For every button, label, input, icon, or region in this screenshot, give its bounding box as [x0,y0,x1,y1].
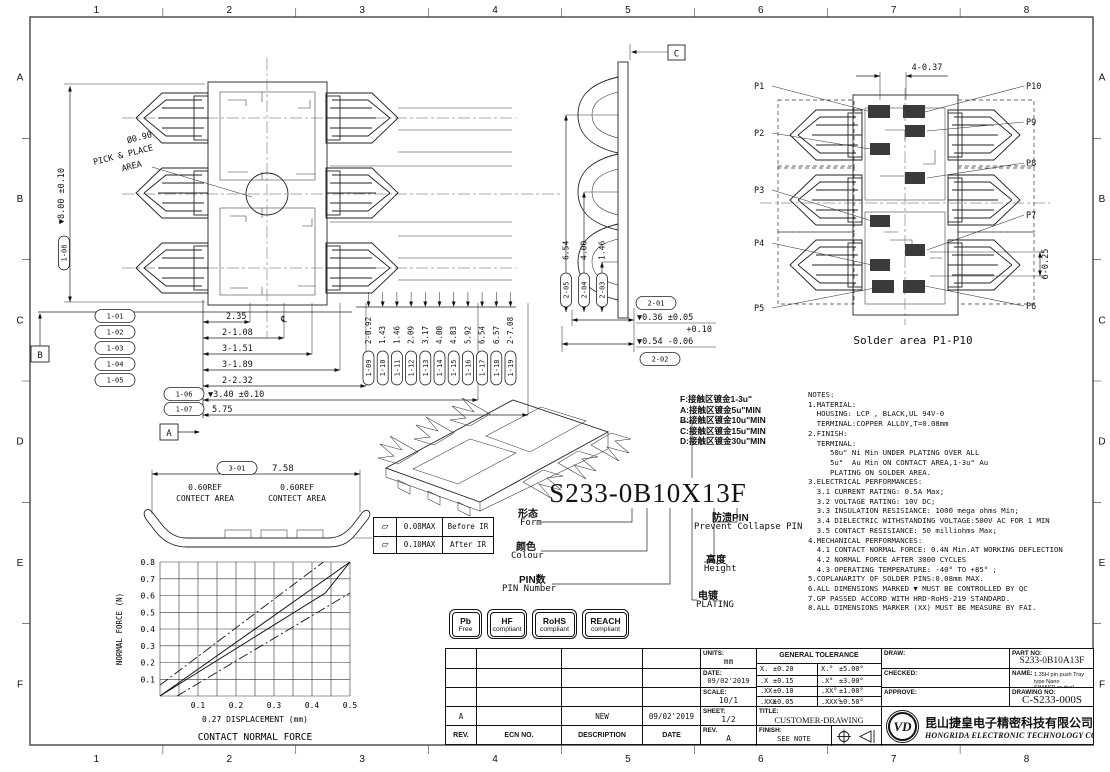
badge-reach-top: REACH [590,616,620,626]
contact-area-right-line1: 0.60REF [280,483,314,492]
dim-line [772,86,868,111]
callout-label: 1-06 [176,391,193,399]
tolerance-value: ±1.00° [839,687,881,695]
datum-a-label: A [166,429,172,439]
projection-cone-icon [860,730,874,743]
tolerance-value: ±5.00° [839,665,881,673]
chart-y-tick: 0.5 [141,608,156,617]
chart-y-tick: 0.1 [141,675,156,684]
dim-arrow [562,342,568,346]
dim-text: 2-0.92 [364,317,373,344]
callout-label: 2-02 [652,356,669,364]
dim-line [925,286,1024,306]
dim-arrow [203,384,209,388]
part-number-text: S233-0B10X13F [549,478,747,508]
logo-text: VD [893,719,911,735]
dim-arrow [572,318,578,322]
pin-label: P8 [1026,159,1036,169]
chart-y-tick: 0.4 [141,625,156,634]
date-value: 09/02'2019 [701,677,756,685]
dim-text: 5.75 [212,405,232,415]
badge-reach: REACHcompliant [582,609,629,639]
checked-cell: CHECKED: [881,668,1009,687]
zone-col-label: 6 [758,754,764,765]
chart-x-tick: 0.2 [229,701,244,710]
profile-dim-value: 7.58 [272,464,294,474]
revision-cell [476,706,561,725]
dim-text: 2-1.08 [222,328,253,338]
form-label-en: Form [520,518,542,528]
dim-arrow [203,320,209,324]
callout-label: 1-04 [107,361,124,369]
collapse-label-en: Prevent Collapse PIN [694,522,802,532]
chart-title: CONTACT NORMAL FORCE [198,732,313,743]
dim-text: 3.17 [421,326,430,344]
revision-cell [446,649,476,668]
sheet-value: 1/2 [701,715,756,724]
chart-xlabel: 0.27 DISPLACEMENT (mm) [202,715,308,724]
rev-label: REV. [703,727,717,734]
pin-label-en: PIN Number [502,584,556,594]
callout-label: 2-04 [581,282,589,299]
dim-arrow [38,313,42,319]
dim-arrow [203,413,209,417]
company-name-en: HONGRIDA ELECTRONIC TECHNOLOGY CO,LTD. [925,731,1094,740]
dim-text: 2-7.08 [506,316,515,344]
badge-hf: HFcompliant [487,609,527,639]
dim-text: 6.54 [562,241,571,260]
dim-arrow [381,302,385,308]
dim-arrow [423,302,427,308]
title-label: TITLE: [759,708,779,715]
dim-arrow [203,368,209,372]
dim-arrow [367,302,371,308]
dim-text: 1.46 [392,325,401,344]
pick-place-note: Ø0.90 PICK & PLACE AREA [89,129,160,180]
zone-row-label: F [17,679,23,690]
title-block: UNITS: mm DATE: 09/02'2019 SCALE: 10/1 S… [700,648,1094,745]
tolerance-value: .X° [817,676,839,686]
plating-options: F:接触区镀金1-3u" A:接触区镀金5u"MIN B:接触区镀金10u"MI… [680,394,766,447]
dim-line [927,122,1024,131]
callout-label: 1-13 [422,360,430,377]
height-label-en: Height [704,564,737,574]
zone-col-label: 7 [891,754,897,765]
pin-label: P1 [754,82,764,92]
dim-line [772,243,872,265]
chart-y-tick: 0.8 [141,558,156,567]
tolerance-grid: X.±0.20X.°±5.00°.X±0.15.X°±3.00°.XX±0.10… [756,663,881,706]
pin-label: P2 [754,129,764,139]
zone-col-label: 8 [1024,754,1030,765]
datum-b-label: B [37,351,42,361]
badge-hf-bottom: compliant [492,626,521,633]
badge-reach-bottom: compliant [591,626,620,633]
plating-label-en: PLATING [696,600,734,610]
tolerance-title: GENERAL TOLERANCE [756,649,881,663]
zone-col-label: 8 [1024,5,1030,16]
projection-symbols-cell [831,725,881,746]
zone-row-label: E [17,558,24,569]
solder-right-dim: 6-0.25 [1041,249,1051,280]
dim-text: 6.54 [478,325,487,344]
zone-row-label: C [1098,315,1105,326]
dim-text: ▼3.40 ±0.10 [208,390,264,400]
callout-label: 1-15 [450,360,458,377]
projection-symbols [833,727,881,746]
notes-block: NOTES: 1.MATERIAL: HOUSING: LCP , BLACK,… [808,390,1093,613]
chart-y-tick: 0.3 [141,642,156,651]
pin-label: P5 [754,304,764,314]
drawing-no-label: DRAWING NO: [1012,689,1056,696]
dim-arrow [466,302,470,308]
dim-arrow [361,384,367,388]
revision-header: ECN NO. [476,725,561,744]
drawing-sheet: B A C ℄ ▼8.00 ±0.10 Ø0.90 PICK & PLACE A… [0,0,1110,772]
dim-text: +0.10 [686,325,712,335]
dim-text: 4.00 [435,325,444,344]
revision-cell [446,668,476,687]
callout-label: 2-03 [599,282,607,299]
chart-y-tick: 0.2 [141,659,156,668]
zone-row-label: C [16,315,23,326]
flatness-label: Before IR [442,518,493,536]
zone-col-label: 3 [359,5,365,16]
revision-header: REV. [446,725,476,744]
callout-label: 1-19 [507,360,515,377]
badge-rohs: RoHScompliant [532,609,577,639]
dim-arrow [395,302,399,308]
callout-label: 1-17 [479,360,487,377]
dim-arrow [600,262,604,268]
solder-caption: Solder area P1-P10 [853,334,972,347]
pin-label: P9 [1026,118,1036,128]
chart-y-tick: 0.6 [141,592,156,601]
revision-table: ANEW09/02'2019REV.ECN NO.DESCRIPTIONDATE [445,648,701,745]
tolerance-value: X. [757,665,773,673]
badge-rohs-top: RoHS [543,616,566,626]
badge-hf-top: HF [501,616,512,626]
dim-text: 2-2.32 [222,376,253,386]
dim-arrow [473,398,479,402]
tolerance-value: ±3.00° [839,677,881,685]
dim-text: 1.43 [378,326,387,344]
revision-cell [476,668,561,687]
badge-rohs-bottom: compliant [540,626,569,633]
flatness-value: 0.08MAX [396,518,442,536]
tolerance-row: X.±0.20X.°±5.00° [757,664,881,675]
flatness-table: ▱0.08MAXBefore IR▱0.10MAXAfter IR [373,517,494,554]
dim-arrow [564,115,568,121]
badge-pb-free: PbFree [449,609,482,639]
dim-text: 3-1.89 [222,360,253,370]
tolerance-value: ±0.50° [839,698,881,706]
tolerance-value: .XX° [817,687,839,697]
dim-text: 5.92 [463,326,472,344]
revision-cell [446,687,476,706]
dim-line [925,86,1024,112]
revision-cell: 09/02'2019 [642,706,700,725]
dim-arrow [355,472,361,476]
scale-label: SCALE: [703,689,726,696]
flatness-value: 0.10MAX [396,536,442,554]
revision-cell [642,687,700,706]
centerline-symbol: ℄ [280,315,287,325]
dim-arrow [438,302,442,308]
contact-area-left-line1: 0.60REF [188,483,222,492]
sheet-cell: SHEET: 1/2 [701,706,756,725]
revision-cell [642,668,700,687]
dim-arrow [203,336,209,340]
solder-view-linework [760,72,1050,325]
finish-label: FINISH: [759,727,782,734]
company-logo: VD [888,712,917,741]
dim-arrow [152,472,158,476]
rev-value: A [701,734,756,743]
revision-cell [476,687,561,706]
dim-arrow [906,74,912,78]
dim-line [772,190,872,221]
part-no-cell: PART NO: S233-0B10A13F [1009,649,1094,668]
chart-x-tick: 0.3 [267,701,282,710]
units-cell: UNITS: mm [701,649,756,668]
drawing-no-cell: DRAWING NO: C-S233-000S [1009,687,1094,706]
tolerance-row: .XX±0.10.XX°±1.00° [757,686,881,697]
flatness-label: After IR [442,536,493,554]
checked-label: CHECKED: [884,670,917,677]
callout-label: 1-18 [493,360,501,377]
sheet-label: SHEET: [703,708,725,715]
solder-top-dim: 4-0.37 [912,63,943,73]
dim-text: ▼0.54 -0.06 [637,337,693,347]
height-dim-text: ▼8.00 ±0.10 [57,168,67,224]
contact-area-left-line2: CONTECT AREA [176,494,234,503]
dim-arrow [629,342,635,346]
chart-y-tick: 0.7 [141,575,156,584]
dim-arrow [582,192,586,198]
pin-label: P3 [754,186,764,196]
zone-col-label: 5 [625,5,631,16]
revision-cell [561,649,642,668]
zone-row-label: F [1099,679,1105,690]
dim-arrow [875,74,881,78]
callout-label: 1-07 [176,406,193,414]
pin-label: P6 [1026,302,1036,312]
callout-label: 1-01 [107,313,124,321]
revision-header: DATE [642,725,700,744]
target-symbol-icon [837,730,851,744]
badge-pb-bottom: Free [459,626,473,633]
tolerance-value: .XXX [757,698,773,706]
company-cell: VD 昆山捷皇电子精密科技有限公司 HONGRIDA ELECTRONIC TE… [881,706,1094,746]
flatness-symbol: ▱ [374,536,396,554]
dim-arrow [68,297,72,303]
zone-row-label: D [16,437,23,448]
date-cell: DATE: 09/02'2019 [701,668,756,687]
callout-label: 1-11 [393,360,401,377]
dim-arrow [68,86,72,92]
tolerance-row: .XXX±0.05.XXX°±0.50° [757,696,881,706]
zone-col-label: 4 [492,754,498,765]
rev-cell: REV. A [701,725,756,746]
zone-row-label: A [1099,73,1106,84]
pin-label: P4 [754,239,764,249]
dim-arrow [509,302,513,308]
dim-text: 1.46 [598,241,607,260]
dim-arrow [307,352,313,356]
dim-arrow [629,318,635,322]
revision-cell [476,649,561,668]
title-cell: TITLE: CUSTOMER-DRAWING [756,706,881,725]
zone-col-label: 4 [492,5,498,16]
company-name-cn: 昆山捷皇电子精密科技有限公司 [925,714,1094,731]
pin-label: P10 [1026,82,1041,92]
name-cell: NAME: 1.35H pin push Tray type Nano SIM&… [1009,668,1094,687]
chart-x-tick: 0.4 [305,701,320,710]
dim-arrow [203,352,209,356]
callout-label: 1-03 [107,345,124,353]
callout-label: 1-09 [365,360,373,377]
zone-row-label: D [1098,437,1105,448]
callout-label: 1-12 [408,360,416,377]
zone-col-label: 6 [758,5,764,16]
dim-arrow [494,302,498,308]
scale-value: 10/1 [701,696,756,705]
revision-cell: NEW [561,706,642,725]
zone-col-label: 1 [94,5,100,16]
callout-label: 3-01 [229,465,246,473]
name-label: NAME: [1012,670,1033,677]
tolerance-value: ±0.20 [773,665,817,673]
dim-text: 3-1.51 [222,344,253,354]
dim-text: 4.83 [449,326,458,344]
dim-arrow [523,413,529,417]
callout-label: 1-14 [436,360,444,377]
contact-area-right-line2: CONTECT AREA [268,494,326,503]
tolerance-value: ±0.15 [773,677,817,685]
pin-label: P7 [1026,211,1036,221]
tolerance-row: .X±0.15.X°±3.00° [757,675,881,686]
tolerance-value: X.° [817,664,839,675]
chart-x-tick: 0.5 [343,701,358,710]
flatness-symbol: ▱ [374,518,396,536]
badge-pb-top: Pb [460,616,471,626]
zone-row-label: B [17,194,24,205]
date-label: DATE: [703,670,722,677]
finish-value: SEE NOTE [757,735,831,743]
draw-label: DRAW: [884,650,905,657]
datum-c-label: C [674,50,679,60]
dim-line [927,215,1024,250]
callout-label: 1-10 [379,360,387,377]
zone-col-label: 7 [891,5,897,16]
colour-label-en: Colour [511,551,544,561]
revision-cell [561,668,642,687]
dim-text: 6.57 [492,326,501,344]
contact-force-chart: 0.10.20.30.40.50.10.20.30.40.50.60.70.8 … [82,552,374,764]
solder-pads [868,105,925,293]
dim-text: ▼0.36 ±0.05 [637,313,693,323]
tolerance-value: ±0.05 [773,698,817,706]
title-value: CUSTOMER-DRAWING [757,715,881,725]
revision-cell [642,649,700,668]
dim-text: 4.00 [580,241,589,260]
chart-ylabel: NORMAL FORCE (N) [115,593,124,665]
chart-series [160,562,323,685]
callout-label: 1-16 [464,360,472,377]
revision-cell [561,687,642,706]
revision-cell: A [446,706,476,725]
callout-label: 2-01 [648,300,665,308]
zone-row-label: E [1099,558,1106,569]
callout-label: 1-02 [107,329,124,337]
scale-cell: SCALE: 10/1 [701,687,756,706]
chart-series [177,593,350,696]
callout-label: 2-05 [563,282,571,299]
callout-label: 1-05 [107,377,124,385]
callout-label: 1-08 [61,245,69,262]
zone-row-label: A [17,73,24,84]
dim-text: 2.09 [407,326,416,344]
finish-cell: FINISH: SEE NOTE [756,725,831,746]
profile-view-linework [144,470,372,547]
dim-arrow [409,302,413,308]
dim-text: 2.35 [226,312,246,322]
part-no-value: S233-0B10A13F [1010,656,1094,666]
pick-place-line2: AREA [121,160,143,175]
dim-arrow [195,430,201,434]
tolerance-value: ±0.10 [773,687,817,695]
dim-arrow [631,50,637,54]
name-line1: 1.35H pin push Tray type Nano [1034,672,1094,685]
zone-row-label: B [1099,194,1106,205]
tolerance-value: .XX [757,687,773,695]
zone-col-label: 5 [625,754,631,765]
dim-line [927,163,1024,178]
dim-arrow [279,336,285,340]
revision-header: DESCRIPTION [561,725,642,744]
units-label: UNITS: [703,650,724,657]
dim-arrow [480,302,484,308]
draw-cell: DRAW: [881,649,1009,668]
approve-cell: APPROVE: [881,687,1009,706]
tolerance-value: .X [757,677,773,685]
dim-arrow [452,302,456,308]
part-no-label: PART NO: [1012,650,1042,657]
zone-col-label: 2 [227,5,233,16]
tolerance-value: .XXX° [817,697,839,706]
chart-x-tick: 0.1 [191,701,206,710]
dim-arrow [335,368,341,372]
approve-label: APPROVE: [884,689,917,696]
units-value: mm [701,657,756,666]
